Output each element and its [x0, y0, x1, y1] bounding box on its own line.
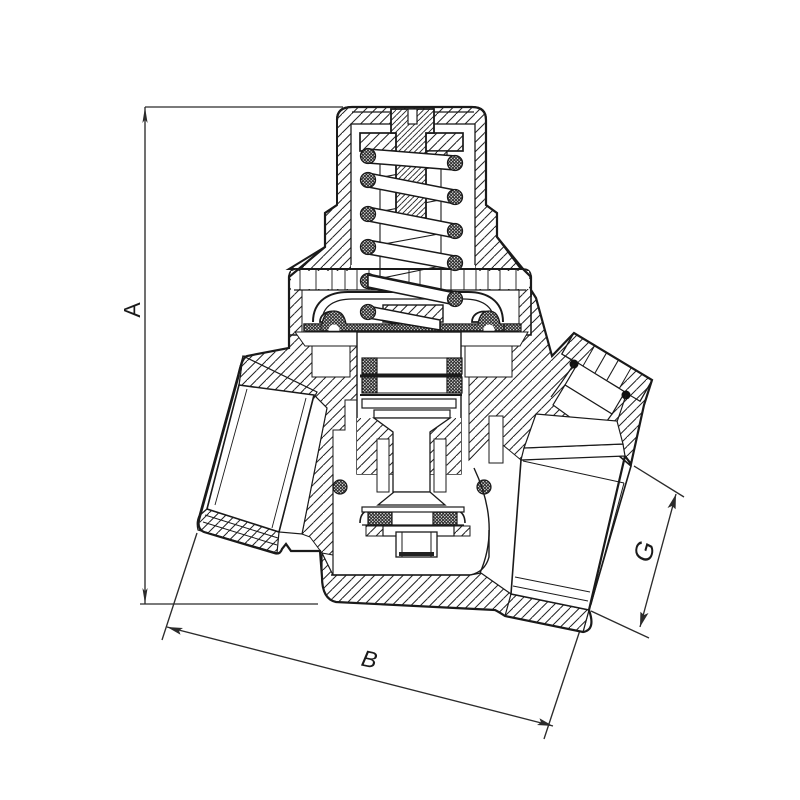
svg-text:A: A	[119, 302, 145, 318]
